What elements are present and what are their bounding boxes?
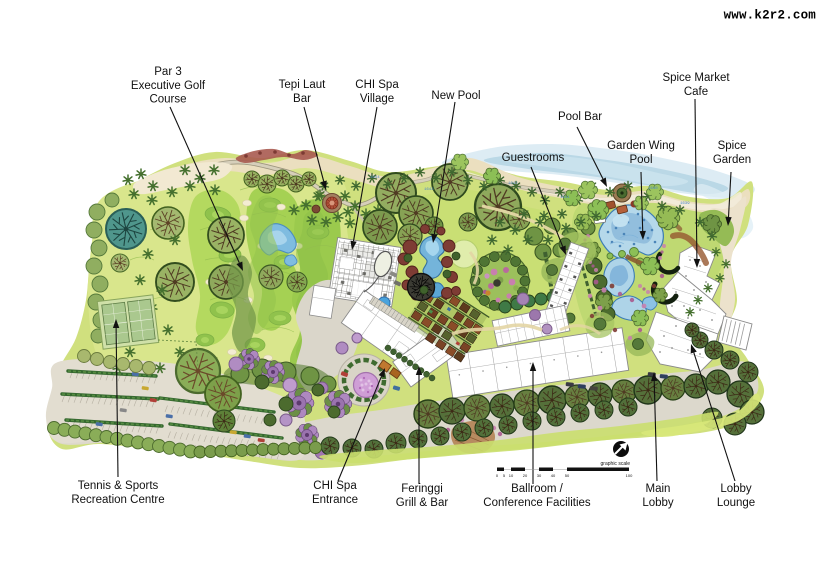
svg-text:1644: 1644 xyxy=(370,176,380,180)
svg-text:100: 100 xyxy=(626,473,633,478)
svg-text:30: 30 xyxy=(537,473,542,478)
svg-text:www.k2r2.com: www.k2r2.com xyxy=(724,9,817,23)
svg-text:1643: 1643 xyxy=(424,188,434,192)
svg-text:FeringgiGrill & Bar: FeringgiGrill & Bar xyxy=(396,483,449,509)
svg-text:Tennis & SportsRecreation Cent: Tennis & SportsRecreation Centre xyxy=(71,480,164,506)
svg-text:1639: 1639 xyxy=(680,202,690,206)
svg-text:40: 40 xyxy=(551,473,556,478)
svg-text:20: 20 xyxy=(523,473,528,478)
svg-text:1640: 1640 xyxy=(648,187,658,191)
svg-text:LobbyLounge: LobbyLounge xyxy=(717,483,755,509)
svg-text:CHI SpaEntrance: CHI SpaEntrance xyxy=(312,480,358,506)
svg-text:MainLobby: MainLobby xyxy=(642,483,674,509)
svg-text:New Pool: New Pool xyxy=(431,90,480,102)
svg-text:1642: 1642 xyxy=(508,182,518,186)
svg-text:graphic scale: graphic scale xyxy=(601,461,631,467)
svg-text:Guestrooms: Guestrooms xyxy=(502,152,565,164)
svg-text:50: 50 xyxy=(565,473,570,478)
svg-text:CHI SpaVillage: CHI SpaVillage xyxy=(355,79,399,105)
svg-text:1641: 1641 xyxy=(560,196,570,200)
svg-text:10: 10 xyxy=(509,473,514,478)
svg-text:SpiceGarden: SpiceGarden xyxy=(713,140,751,166)
svg-text:Pool Bar: Pool Bar xyxy=(558,111,602,123)
